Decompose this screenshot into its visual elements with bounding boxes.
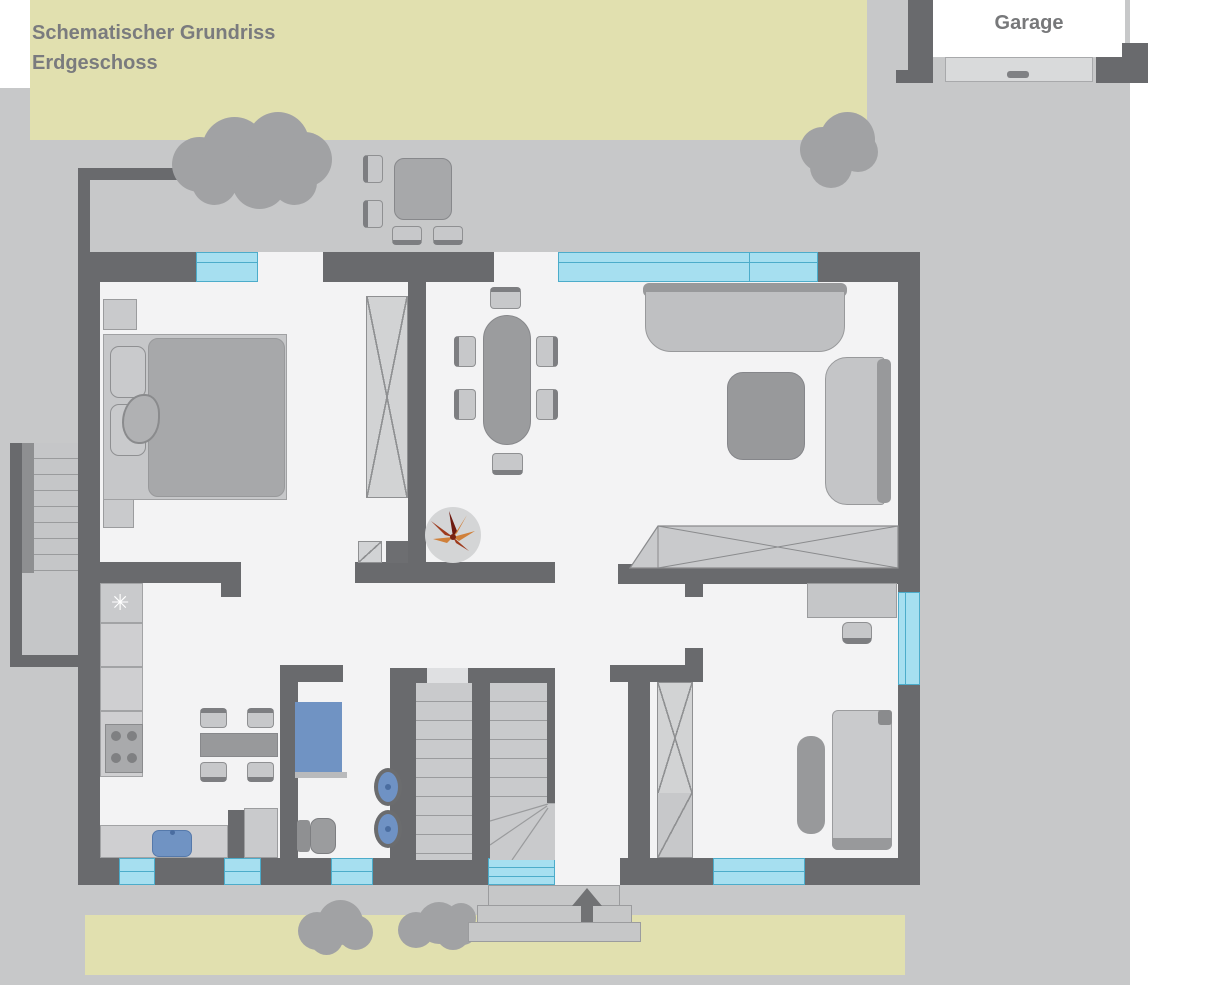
garage-door xyxy=(945,57,1093,82)
exterior-wall-right xyxy=(898,252,920,885)
wall-stair-top-a xyxy=(416,668,427,683)
dining-chair xyxy=(454,389,476,420)
study-rug xyxy=(797,736,825,834)
garage-wall-notch xyxy=(896,70,921,83)
dining-chair xyxy=(490,287,521,309)
toilet-tank xyxy=(297,820,310,852)
wall-bath-top xyxy=(280,665,343,682)
drain xyxy=(385,826,391,832)
kitchen-table xyxy=(200,733,278,757)
wall-study-top xyxy=(610,665,703,682)
window-stairs xyxy=(488,858,555,885)
burner xyxy=(127,731,137,741)
kitchen-chair xyxy=(200,708,227,728)
garage-wall-right-outer xyxy=(1122,43,1148,83)
tree xyxy=(800,112,880,190)
wall-stair-middle xyxy=(472,683,490,860)
terrace-table xyxy=(394,158,452,220)
kitchen-counter xyxy=(100,623,143,667)
dining-chair xyxy=(454,336,476,367)
desk-chair xyxy=(842,622,872,644)
desk xyxy=(807,583,897,618)
entrance-step xyxy=(468,922,641,942)
floor-plan: Schematischer Grundriss Erdgeschoss Gara… xyxy=(0,0,1226,1000)
burner xyxy=(111,731,121,741)
chimney-flue xyxy=(358,541,382,563)
window-study-east xyxy=(898,592,920,685)
tree xyxy=(298,900,373,955)
garage-door-handle xyxy=(1007,71,1029,78)
wall-hall-dining xyxy=(355,562,555,583)
armchair-back xyxy=(877,359,891,503)
terrace-chair xyxy=(392,226,422,245)
sofa-body xyxy=(645,291,845,352)
washbasin xyxy=(374,810,402,848)
wall-stair-top-b xyxy=(468,668,555,683)
window-kitchen-b xyxy=(224,858,261,885)
nightstand xyxy=(103,299,137,330)
shower xyxy=(295,702,342,772)
wardrobe-bedroom xyxy=(366,296,408,498)
dining-table xyxy=(483,315,531,445)
wall-study-nub xyxy=(685,648,703,665)
shower-tray-edge xyxy=(295,772,347,778)
dining-chair xyxy=(536,389,558,420)
kitchen-chair xyxy=(247,762,274,782)
exterior-wall-bottom xyxy=(805,858,920,885)
terrace-chair xyxy=(433,226,463,245)
exterior-wall-bottom xyxy=(155,858,224,885)
faucet xyxy=(170,830,175,835)
basement-stair-stringer xyxy=(22,443,34,573)
burner xyxy=(111,753,121,763)
wall-study-left xyxy=(628,682,650,858)
exterior-wall-top xyxy=(323,252,494,282)
nightstand xyxy=(103,497,134,528)
stove xyxy=(105,724,143,773)
garage-wall-right-post xyxy=(1096,57,1122,83)
sideboard xyxy=(628,524,900,570)
kitchen-counter xyxy=(100,667,143,711)
window-kitchen-a xyxy=(119,858,155,885)
window-study-south xyxy=(713,858,805,885)
kitchen-chair xyxy=(200,762,227,782)
dining-chair xyxy=(492,453,523,475)
drain xyxy=(385,784,391,790)
study-bed xyxy=(832,710,892,850)
burner xyxy=(127,753,137,763)
stair-flight-right xyxy=(490,683,547,803)
window-living xyxy=(558,252,818,282)
wall-bedroom-kitchen xyxy=(78,562,241,583)
basement-stair-landing xyxy=(22,573,78,655)
exterior-wall-bottom xyxy=(620,858,713,885)
kitchen-sink xyxy=(152,830,192,857)
stair-landing xyxy=(427,668,468,683)
plan-title: Schematischer Grundriss Erdgeschoss xyxy=(32,18,275,78)
wardrobe-study-door xyxy=(657,793,693,858)
stair-flight-left xyxy=(416,683,472,860)
dining-chair xyxy=(536,336,558,367)
plan-title-line1: Schematischer Grundriss xyxy=(32,18,275,48)
exterior-wall-bottom xyxy=(78,858,119,885)
exterior-wall-top xyxy=(818,252,920,282)
coffee-table xyxy=(727,372,805,460)
kitchen-chair xyxy=(247,708,274,728)
terrace-railing-v xyxy=(78,168,90,252)
fridge: ✳ xyxy=(100,583,143,623)
wall-stub-kitchen-door xyxy=(221,583,241,597)
study-bed-foot xyxy=(832,838,892,850)
entrance-arrow-stem xyxy=(581,906,593,922)
basement-stair-wall-left xyxy=(10,443,22,667)
wall-stub-study-door xyxy=(685,584,703,597)
toilet-bowl xyxy=(310,818,336,854)
basement-stair-treads xyxy=(34,443,78,573)
window-bedroom xyxy=(196,252,258,282)
basement-stair-wall-bottom xyxy=(10,655,78,667)
study-bed-pillow xyxy=(878,710,892,725)
wall-stair-right xyxy=(547,683,555,803)
bed-pillow xyxy=(110,346,146,398)
exterior-wall-top xyxy=(78,252,196,282)
wall-kitchen-fragment xyxy=(228,810,244,860)
wardrobe-study xyxy=(657,682,693,794)
chimney-block xyxy=(386,541,408,563)
plan-title-line2: Erdgeschoss xyxy=(32,48,275,78)
entrance-arrow-icon xyxy=(572,888,602,906)
kitchen-cabinet xyxy=(244,808,278,858)
plant-icon xyxy=(424,506,482,564)
garage-label: Garage xyxy=(933,12,1125,35)
window-bathroom xyxy=(331,858,373,885)
tree xyxy=(172,112,332,207)
bed-mattress xyxy=(148,338,285,497)
snowflake-icon: ✳ xyxy=(111,592,129,614)
terrace-chair xyxy=(363,155,383,183)
exterior-wall-bottom xyxy=(261,858,331,885)
armchair-body xyxy=(825,357,885,505)
washbasin xyxy=(374,768,402,806)
stair-winders xyxy=(490,803,555,860)
terrace-chair xyxy=(363,200,383,228)
